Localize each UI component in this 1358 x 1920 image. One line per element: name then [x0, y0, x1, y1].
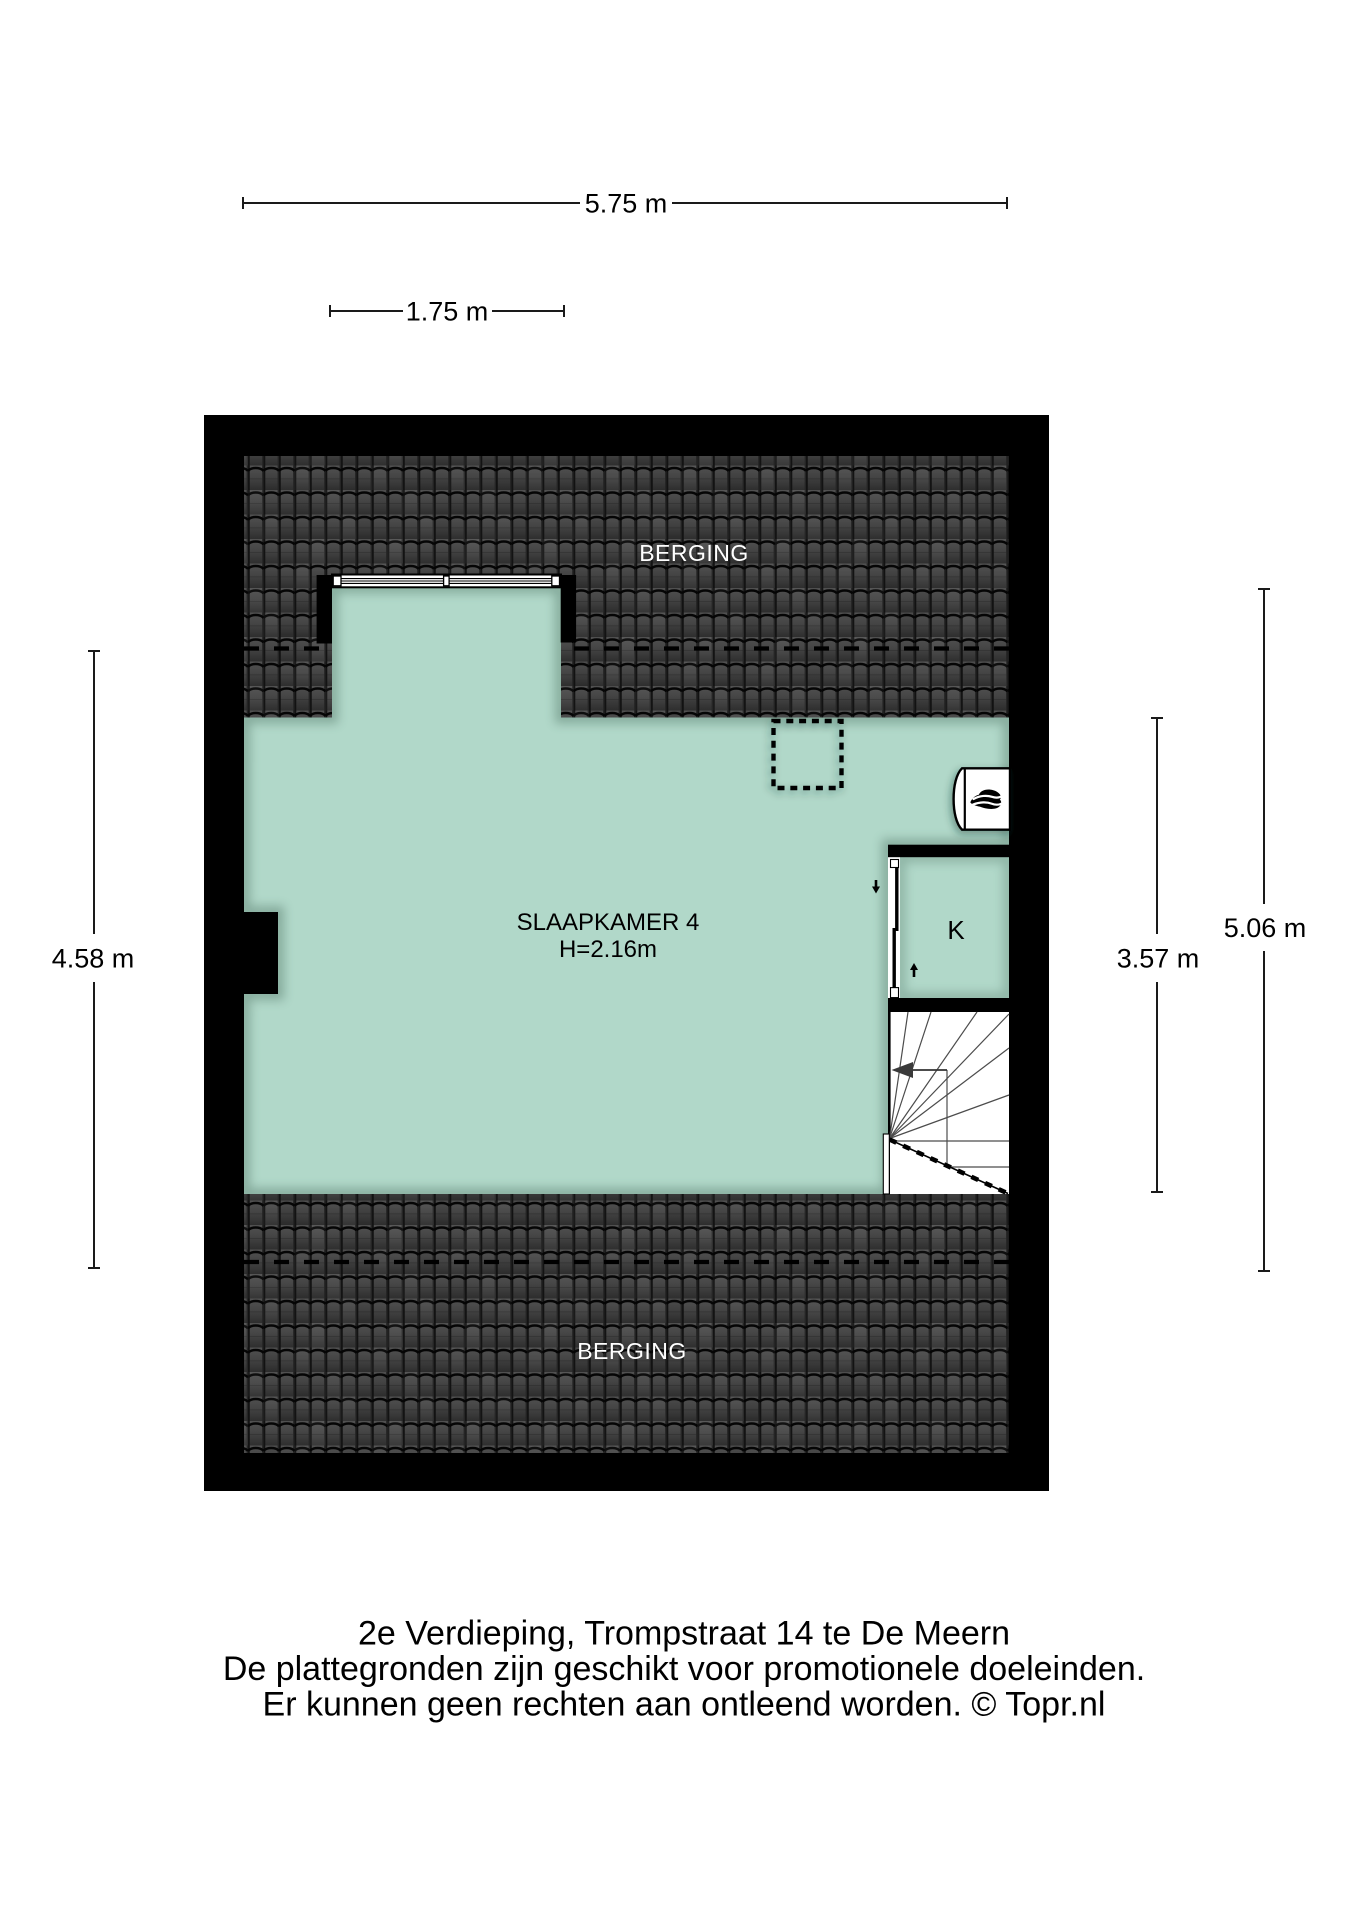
svg-text:2e Verdieping, Trompstraat 14: 2e Verdieping, Trompstraat 14 te De Meer…: [358, 1615, 1010, 1653]
svg-text:SLAAPKAMER 4: SLAAPKAMER 4: [517, 909, 700, 936]
svg-text:De plattegronden zijn geschikt: De plattegronden zijn geschikt voor prom…: [223, 1650, 1145, 1688]
svg-text:Er kunnen geen rechten aan ont: Er kunnen geen rechten aan ontleend word…: [263, 1686, 1106, 1724]
svg-text:5.06 m: 5.06 m: [1224, 913, 1307, 943]
svg-text:3.57 m: 3.57 m: [1117, 944, 1200, 974]
svg-text:5.75 m: 5.75 m: [585, 189, 668, 219]
svg-text:K: K: [947, 915, 965, 945]
svg-text:BERGING: BERGING: [577, 1338, 687, 1364]
svg-text:4.58 m: 4.58 m: [52, 944, 135, 974]
svg-text:1.75 m: 1.75 m: [406, 297, 489, 327]
svg-text:H=2.16m: H=2.16m: [559, 936, 657, 963]
svg-text:BERGING: BERGING: [639, 540, 749, 566]
